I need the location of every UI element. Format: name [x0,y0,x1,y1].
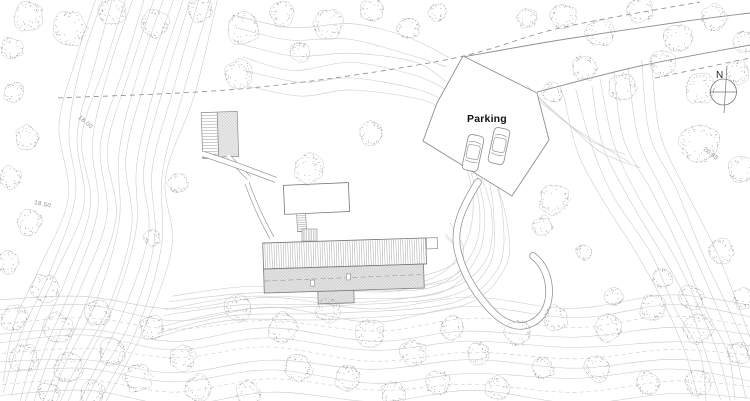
tree [653,268,673,288]
tree [285,354,314,382]
tree [141,9,170,38]
tree [609,73,638,101]
tree [540,185,571,216]
parking-area [423,56,549,196]
tree [650,51,676,76]
tree [295,153,325,186]
tree [313,10,344,40]
tree [485,375,511,399]
tree [53,11,89,45]
labels: Parking N 18.00 18.50 20.85 [34,70,724,210]
property-line [58,2,700,98]
contour-line [243,57,447,90]
tree [396,18,420,38]
tree [143,229,160,247]
tree [733,287,750,309]
tree [733,32,750,53]
tree [1,37,23,58]
tree [399,340,426,367]
property-line [655,58,750,78]
contour-line [576,89,707,401]
contour-line [244,70,448,102]
contour-line [3,0,106,393]
tree [269,1,294,27]
contour-line [247,86,451,116]
tree [0,250,20,274]
door-mark [310,280,314,286]
elevation-label-lower-left: 18.50 [34,200,52,209]
tree [663,25,693,51]
contour-line [532,91,641,168]
site-plan: Parking N 18.00 18.50 20.85 [0,0,750,401]
contour-line [592,86,721,400]
contour-line [651,55,750,401]
tree [467,343,489,365]
tree [225,59,252,89]
roof-top-stairs [302,229,317,241]
tree [14,1,43,31]
tree [517,9,539,28]
contour-line [237,43,446,82]
contour-line [43,0,167,401]
trees [0,0,750,401]
roof-annex [426,238,437,249]
tree [0,166,21,190]
tree [532,357,554,378]
buildings [172,110,450,306]
site-plan-svg: Parking N 18.00 18.50 20.85 [0,0,750,401]
tree [360,121,383,146]
tree [595,314,622,343]
tree [728,157,750,183]
contour-line [0,316,750,331]
parking-lot-outline [423,56,549,196]
contour-line [3,0,99,382]
tree [381,381,406,401]
tree [626,0,653,23]
tree [335,365,360,391]
tree [4,82,24,102]
contour-line [0,368,750,383]
tree [428,4,447,22]
north-line-vertical [724,66,727,113]
north-label: N [716,70,723,81]
tree [236,380,262,401]
tree [224,294,251,321]
tree [188,0,213,23]
tree [290,43,310,63]
tree [356,320,384,348]
tree [685,370,711,395]
tree [16,124,40,149]
contour-line [0,390,750,401]
tree [637,371,661,394]
contour-line [628,67,746,399]
contour-line [79,0,219,401]
tree [576,245,592,261]
tree [268,311,298,343]
door-mark [346,274,350,280]
middle-building [283,183,350,233]
tree [167,174,189,193]
contour-line [47,0,175,401]
tree [542,83,564,102]
tree [532,215,554,236]
tree [426,371,453,395]
tree [30,274,60,303]
tree [84,300,112,325]
tree [169,345,196,372]
upper-stair-structure [172,110,283,160]
tree [17,209,42,235]
contour-line [29,0,146,401]
tree [228,11,259,44]
parking-label: Parking [467,113,507,125]
tree [360,0,384,21]
contour-line [238,28,447,67]
tree [584,356,610,383]
road-edge-upper [463,13,750,57]
contour-line [0,359,750,373]
property-boundary-lines [58,2,750,98]
tree [185,373,213,401]
tree [549,5,577,29]
elevation-label-upper-left: 18.00 [77,115,94,131]
